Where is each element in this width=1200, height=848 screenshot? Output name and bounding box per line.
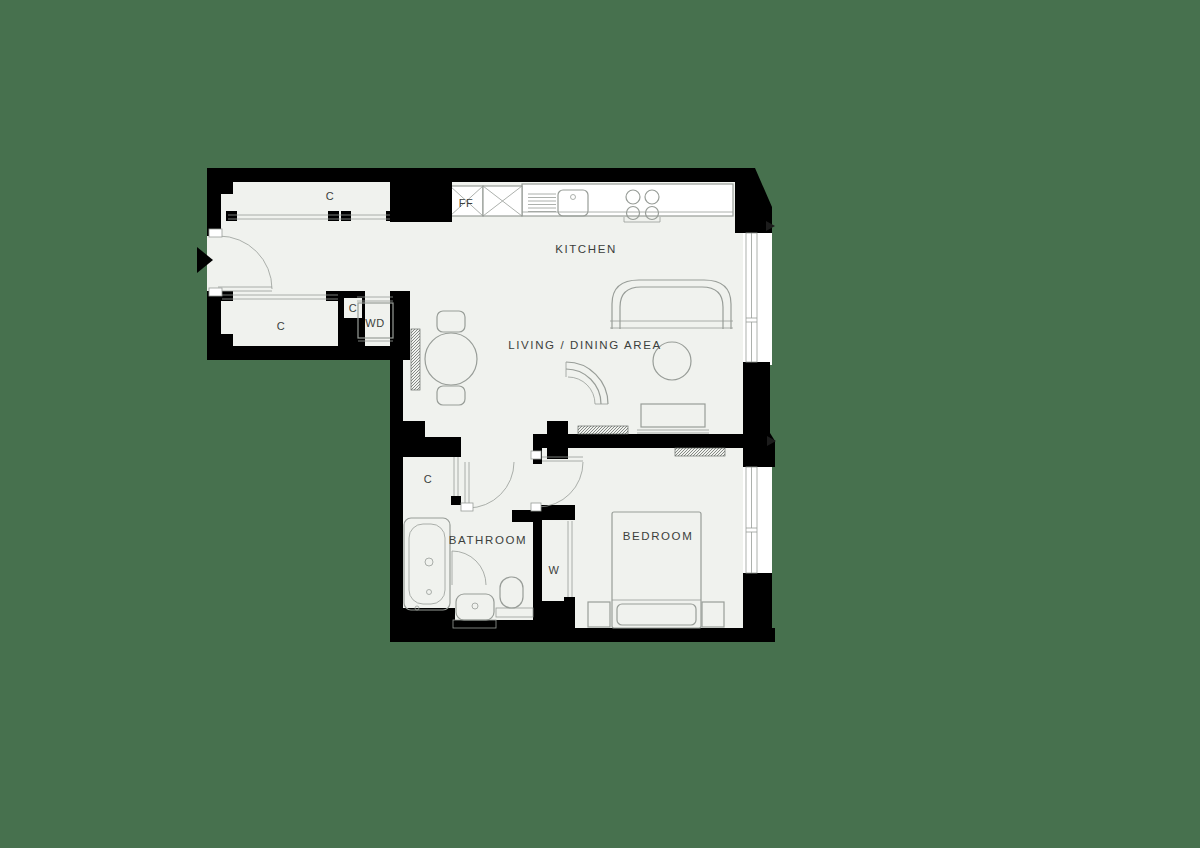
wall-bath-left [390, 358, 403, 632]
label-closet-hall-top: C [326, 190, 334, 202]
label-living-dining: LIVING / DINING AREA [508, 339, 661, 351]
door-jamb-cap [531, 503, 541, 511]
wall-bottom-band [390, 628, 775, 642]
radiator-hall [411, 329, 420, 390]
track-tick [386, 211, 396, 221]
label-washer-dryer: WD [365, 317, 384, 329]
track-tick [328, 211, 339, 221]
label-wardrobe: W [549, 564, 560, 576]
window-bedroom [746, 467, 757, 573]
label-bedroom: BEDROOM [623, 530, 694, 542]
window-living [746, 233, 757, 362]
wall-closet-bottom [207, 346, 410, 360]
label-kitchen: KITCHEN [555, 243, 617, 255]
label-closet-hall-lower: C [277, 320, 285, 332]
kitchen-counter [450, 184, 733, 222]
door-jamb-cap [209, 288, 222, 296]
door-jamb-tick [451, 496, 461, 505]
floor-plan-image: KITCHEN LIVING / DINING AREA BATHROOM BE… [0, 0, 1200, 848]
wall-bathroom-right-stub [512, 510, 540, 522]
track-tick [221, 291, 233, 301]
door-jamb-cap [461, 503, 473, 511]
wall-bedroom-left-lower [533, 508, 542, 605]
door-jamb-cap [209, 229, 222, 237]
label-bathroom: BATHROOM [449, 534, 527, 546]
door-jamb-tick [451, 448, 461, 457]
door-jamb-tick [564, 597, 575, 605]
wall-right-lower [743, 573, 772, 633]
floor-plan-svg: KITCHEN LIVING / DINING AREA BATHROOM BE… [0, 0, 1200, 848]
floor-areas [207, 168, 772, 632]
radiator-living [578, 426, 628, 434]
wall-vestibule-pillar [547, 421, 568, 459]
wall-left-upper [207, 168, 221, 236]
track-tick [326, 291, 338, 301]
door-jamb-cap [531, 451, 541, 459]
wall-right-mid [743, 362, 775, 467]
label-fridge-freezer: FF [459, 197, 473, 209]
wall-step-bathroom-bedroom [533, 601, 575, 632]
wall-bathroom-top-step [403, 421, 425, 437]
label-closet-bathroom: C [424, 473, 432, 485]
track-tick [341, 211, 351, 221]
label-closet-hall-small: C [349, 302, 357, 314]
wall-hall-kitchen-pillar [390, 182, 452, 222]
track-tick [226, 211, 237, 221]
radiator-bedroom [675, 448, 725, 456]
